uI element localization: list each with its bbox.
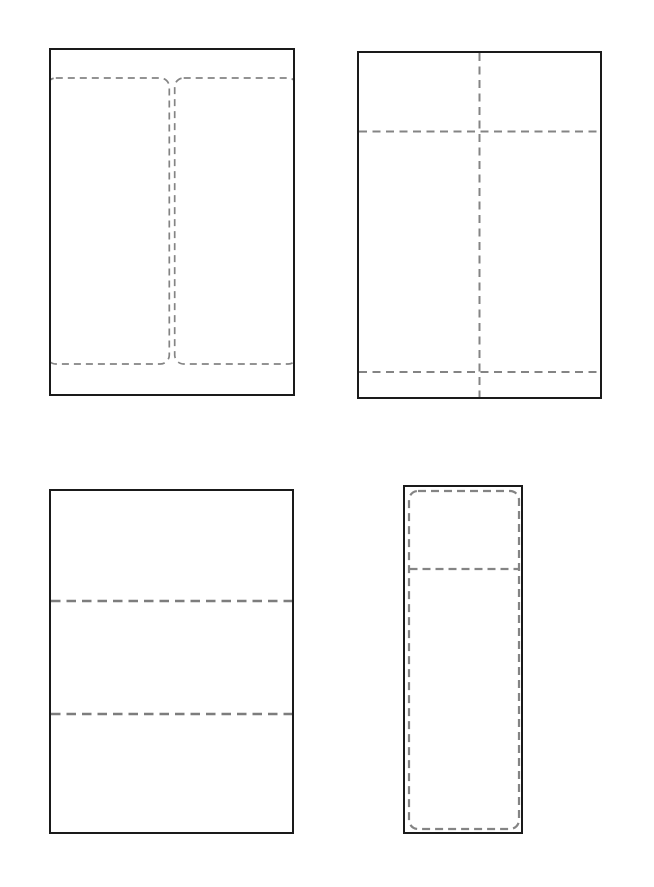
tri-fold-sheet (49, 489, 294, 834)
label-outline-left (49, 78, 169, 364)
cross-fold-sheet (357, 51, 602, 399)
single-label-sheet (403, 485, 523, 834)
sheet-border (358, 52, 601, 398)
sheet-border (50, 490, 293, 833)
template-preview-canvas (0, 0, 654, 887)
label-outline (409, 491, 519, 829)
sheet-border (404, 486, 522, 833)
two-label-sheet (49, 48, 295, 396)
sheet-border (50, 49, 294, 395)
label-outline-right (175, 78, 295, 364)
